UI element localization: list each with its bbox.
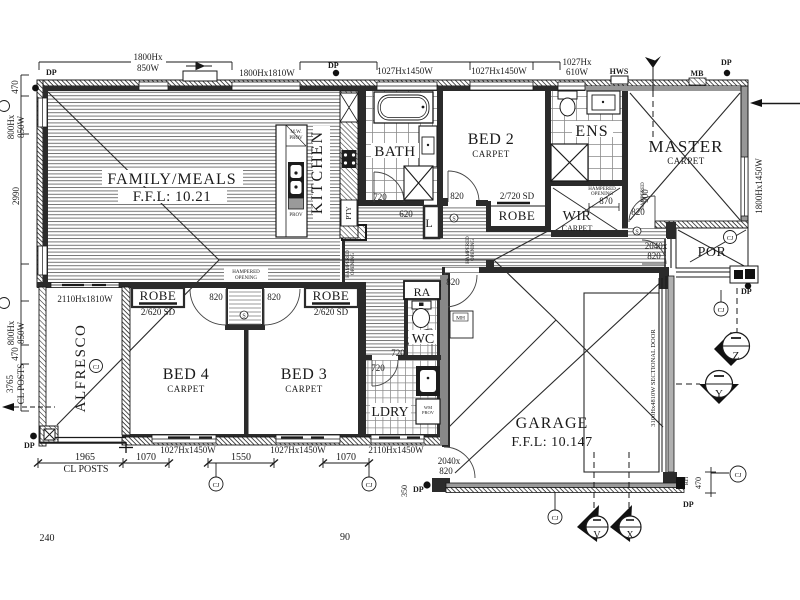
svg-text:ROBE: ROBE (313, 288, 350, 303)
svg-text:BATH: BATH (374, 144, 415, 160)
svg-text:350: 350 (400, 485, 409, 497)
svg-text:1800Hx: 1800Hx (134, 52, 163, 62)
svg-text:FAMILY/MEALS: FAMILY/MEALS (107, 171, 236, 188)
svg-text:820: 820 (209, 292, 223, 302)
svg-text:RH: RH (684, 476, 690, 485)
svg-text:BED 3: BED 3 (281, 366, 328, 383)
svg-text:CARPET: CARPET (667, 156, 705, 166)
svg-text:OPENING: OPENING (471, 239, 476, 261)
svg-text:OPENING: OPENING (591, 192, 613, 197)
svg-text:DP: DP (24, 441, 35, 450)
svg-text:PTY: PTY (345, 206, 353, 219)
svg-text:HWS: HWS (610, 67, 629, 76)
svg-text:850W: 850W (16, 116, 26, 139)
svg-text:DP: DP (46, 68, 57, 77)
svg-text:1027Hx: 1027Hx (563, 57, 592, 67)
svg-text:2990: 2990 (11, 187, 21, 206)
svg-text:820: 820 (267, 292, 281, 302)
svg-text:CL POSTS: CL POSTS (16, 364, 26, 404)
svg-text:MB: MB (691, 69, 705, 78)
svg-text:DP: DP (413, 485, 424, 494)
svg-text:BED 2: BED 2 (468, 131, 515, 148)
svg-text:720: 720 (371, 363, 385, 373)
svg-text:2/620 SD: 2/620 SD (314, 307, 349, 317)
svg-text:LDRY: LDRY (371, 405, 408, 420)
svg-text:S: S (242, 314, 245, 320)
svg-text:1027Hx1450W: 1027Hx1450W (471, 66, 527, 76)
svg-text:870: 870 (599, 196, 613, 206)
svg-text:820: 820 (450, 191, 464, 201)
svg-text:850W: 850W (137, 63, 160, 73)
svg-text:CJ: CJ (727, 236, 734, 242)
svg-text:470: 470 (10, 347, 20, 361)
svg-text:720: 720 (373, 192, 387, 202)
svg-text:620: 620 (399, 209, 413, 219)
svg-text:DP: DP (741, 287, 752, 296)
svg-text:CJ: CJ (552, 515, 559, 522)
svg-text:PROV: PROV (289, 136, 303, 141)
svg-text:ROBE: ROBE (140, 288, 177, 303)
svg-text:1027Hx1450W: 1027Hx1450W (270, 445, 326, 455)
svg-text:CARPET: CARPET (285, 384, 323, 394)
svg-text:1800Hx1450W: 1800Hx1450W (754, 158, 764, 214)
svg-text:S: S (635, 230, 638, 236)
svg-text:820: 820 (446, 277, 460, 287)
svg-text:S: S (452, 217, 455, 223)
svg-text:1550: 1550 (231, 452, 251, 463)
svg-text:820: 820 (647, 251, 661, 261)
svg-text:HAMPERED: HAMPERED (232, 270, 260, 275)
svg-text:X: X (626, 530, 634, 541)
svg-text:2110Hx1810W: 2110Hx1810W (57, 294, 113, 304)
svg-text:BED 4: BED 4 (163, 366, 210, 383)
svg-text:OPENING: OPENING (351, 253, 356, 275)
svg-text:240: 240 (40, 533, 55, 544)
svg-text:90: 90 (340, 532, 350, 543)
svg-text:1027Hx1450W: 1027Hx1450W (160, 445, 216, 455)
svg-text:470: 470 (694, 477, 703, 489)
svg-text:DP: DP (328, 61, 339, 70)
svg-text:RA: RA (414, 285, 431, 299)
svg-text:2/720 SD: 2/720 SD (500, 191, 535, 201)
svg-text:CJ: CJ (213, 482, 220, 489)
svg-text:PROV: PROV (422, 410, 435, 415)
svg-text:ROBE: ROBE (499, 208, 536, 223)
svg-text:1070: 1070 (336, 452, 356, 463)
svg-text:V: V (593, 530, 601, 541)
svg-text:3765: 3765 (5, 375, 15, 394)
svg-text:F.F.L: 10.147: F.F.L: 10.147 (511, 435, 592, 450)
svg-text:1070: 1070 (136, 452, 156, 463)
svg-text:F.F.L: 10.21: F.F.L: 10.21 (133, 189, 212, 205)
svg-text:HAMPERED: HAMPERED (641, 182, 646, 210)
svg-text:MASTER: MASTER (649, 137, 724, 156)
svg-text:610W: 610W (566, 67, 589, 77)
svg-text:2040x: 2040x (438, 456, 461, 466)
svg-text:Z: Z (733, 350, 740, 362)
svg-text:Y: Y (715, 388, 723, 400)
svg-text:470: 470 (10, 80, 20, 94)
svg-text:CARPET: CARPET (562, 224, 593, 233)
svg-text:800Hx: 800Hx (6, 320, 16, 345)
svg-text:M.W.: M.W. (290, 130, 301, 135)
svg-text:ALFRESCO: ALFRESCO (73, 324, 89, 413)
svg-text:GARAGE: GARAGE (516, 415, 589, 432)
svg-text:800Hx: 800Hx (6, 114, 16, 139)
svg-text:DP: DP (683, 500, 694, 509)
svg-text:KITCHEN: KITCHEN (309, 130, 326, 214)
svg-text:CARPET: CARPET (472, 149, 510, 159)
svg-text:CJ: CJ (735, 472, 742, 479)
svg-text:CJ: CJ (93, 365, 100, 371)
svg-text:CARPET: CARPET (167, 384, 205, 394)
svg-text:DP: DP (721, 58, 732, 67)
svg-text:MH: MH (456, 316, 465, 322)
svg-text:OPENING: OPENING (235, 276, 257, 281)
svg-text:WIR: WIR (563, 209, 592, 224)
svg-text:2/620 SD: 2/620 SD (141, 307, 176, 317)
svg-text:CL POSTS: CL POSTS (64, 464, 109, 475)
svg-text:PROV: PROV (289, 213, 303, 218)
svg-text:CJ: CJ (718, 307, 725, 314)
svg-text:820: 820 (439, 466, 453, 476)
svg-text:2040x: 2040x (645, 241, 668, 251)
svg-text:1965: 1965 (75, 452, 95, 463)
svg-text:L: L (425, 216, 432, 230)
svg-text:1800Hx1810W: 1800Hx1810W (239, 68, 295, 78)
svg-text:WC: WC (412, 332, 435, 347)
svg-text:720: 720 (391, 348, 405, 358)
svg-text:2110Hx1450W: 2110Hx1450W (368, 445, 424, 455)
svg-text:ENS: ENS (575, 123, 608, 140)
svg-text:850W: 850W (16, 322, 26, 345)
svg-text:POR: POR (698, 245, 727, 260)
svg-text:3100Hx4810W SECTIONAL DOOR: 3100Hx4810W SECTIONAL DOOR (650, 329, 657, 427)
svg-text:CJ: CJ (366, 482, 373, 489)
svg-text:1027Hx1450W: 1027Hx1450W (377, 66, 433, 76)
